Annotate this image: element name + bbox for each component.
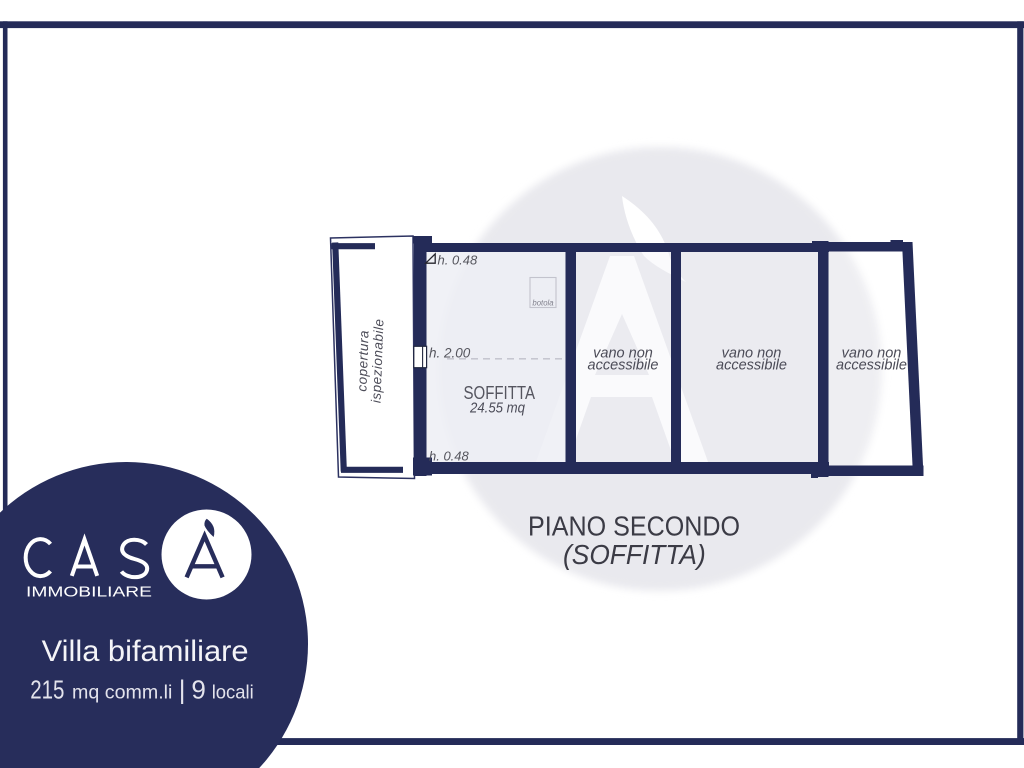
svg-text:accessibile: accessibile: [716, 358, 787, 374]
svg-text:h. 0.48: h. 0.48: [429, 449, 470, 464]
svg-text:IMMOBILIARE: IMMOBILIARE: [26, 583, 152, 600]
svg-text:accessibile: accessibile: [836, 358, 907, 374]
svg-text:24.55 mq: 24.55 mq: [469, 400, 525, 417]
svg-text:accessibile: accessibile: [588, 358, 659, 374]
svg-text:botola: botola: [532, 299, 554, 308]
svg-text:Villa bifamiliare: Villa bifamiliare: [42, 635, 249, 668]
svg-text:ispezionabile: ispezionabile: [369, 318, 387, 403]
svg-text:(SOFFITTA): (SOFFITTA): [563, 539, 706, 570]
svg-text:h. 2.00: h. 2.00: [429, 346, 471, 361]
svg-text:h. 0.48: h. 0.48: [438, 253, 479, 268]
svg-text:PIANO SECONDO: PIANO SECONDO: [528, 511, 740, 542]
